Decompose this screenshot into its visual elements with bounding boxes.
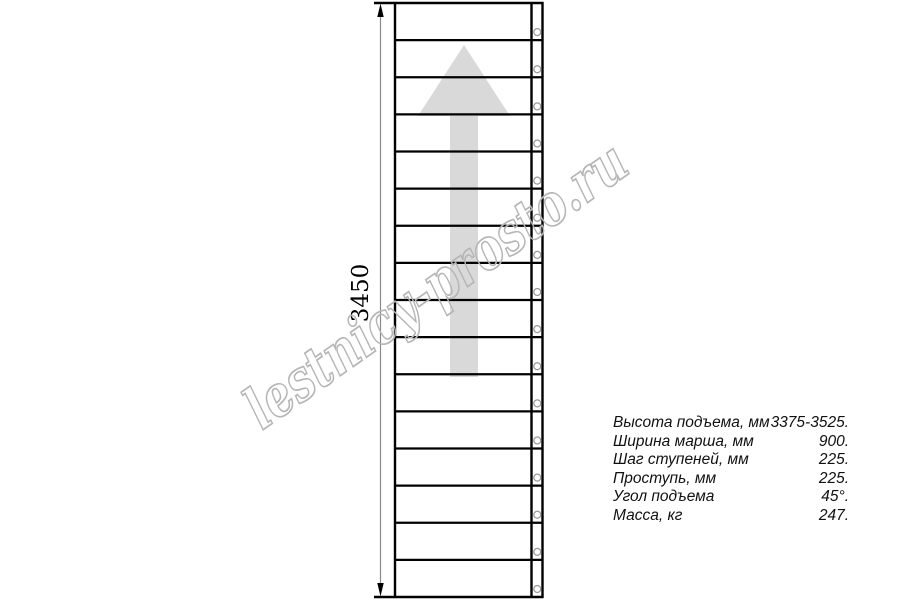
spec-value: 900. xyxy=(819,433,849,452)
watermark-text: lestnicy-prosto.ru xyxy=(231,128,640,442)
mounting-hole-icon xyxy=(534,29,541,36)
mounting-hole-icon xyxy=(534,586,541,593)
mounting-hole-icon xyxy=(534,400,541,407)
mounting-hole-icon xyxy=(534,140,541,147)
spec-value: 247. xyxy=(819,507,849,526)
spec-label: Угол подъема xyxy=(613,488,714,507)
mounting-hole-icon xyxy=(534,103,541,110)
mounting-holes xyxy=(534,29,541,593)
spec-row: Угол подъема 45°. xyxy=(613,488,849,507)
spec-label: Шаг ступеней, мм xyxy=(613,451,749,470)
mounting-hole-icon xyxy=(534,511,541,518)
mounting-hole-icon xyxy=(534,474,541,481)
spec-label: Масса, кг xyxy=(613,507,682,526)
dimension-arrow-bottom xyxy=(377,583,383,597)
mounting-hole-icon xyxy=(534,289,541,296)
spec-value: 45°. xyxy=(821,488,849,507)
spec-table: Высота подъема, мм 3375-3525. Ширина мар… xyxy=(613,414,849,526)
spec-row: Ширина марша, мм 900. xyxy=(613,433,849,452)
spec-label: Ширина марша, мм xyxy=(613,433,754,452)
spec-row: Масса, кг 247. xyxy=(613,507,849,526)
spec-row: Высота подъема, мм 3375-3525. xyxy=(613,414,849,433)
mounting-hole-icon xyxy=(534,66,541,73)
spec-row: Шаг ступеней, мм 225. xyxy=(613,451,849,470)
spec-value: 3375-3525. xyxy=(771,414,849,433)
spec-row: Проступь, мм 225. xyxy=(613,470,849,489)
dimension-arrow-top xyxy=(377,4,383,18)
spec-value: 225. xyxy=(819,470,849,489)
mounting-hole-icon xyxy=(534,326,541,333)
spec-value: 225. xyxy=(819,451,849,470)
drawing-canvas: 3450 lestnicy-prosto.ru Высота подъема, … xyxy=(0,0,900,600)
mounting-hole-icon xyxy=(534,437,541,444)
mounting-hole-icon xyxy=(534,548,541,555)
spec-label: Проступь, мм xyxy=(613,470,716,489)
spec-label: Высота подъема, мм xyxy=(613,414,770,433)
mounting-hole-icon xyxy=(534,363,541,370)
